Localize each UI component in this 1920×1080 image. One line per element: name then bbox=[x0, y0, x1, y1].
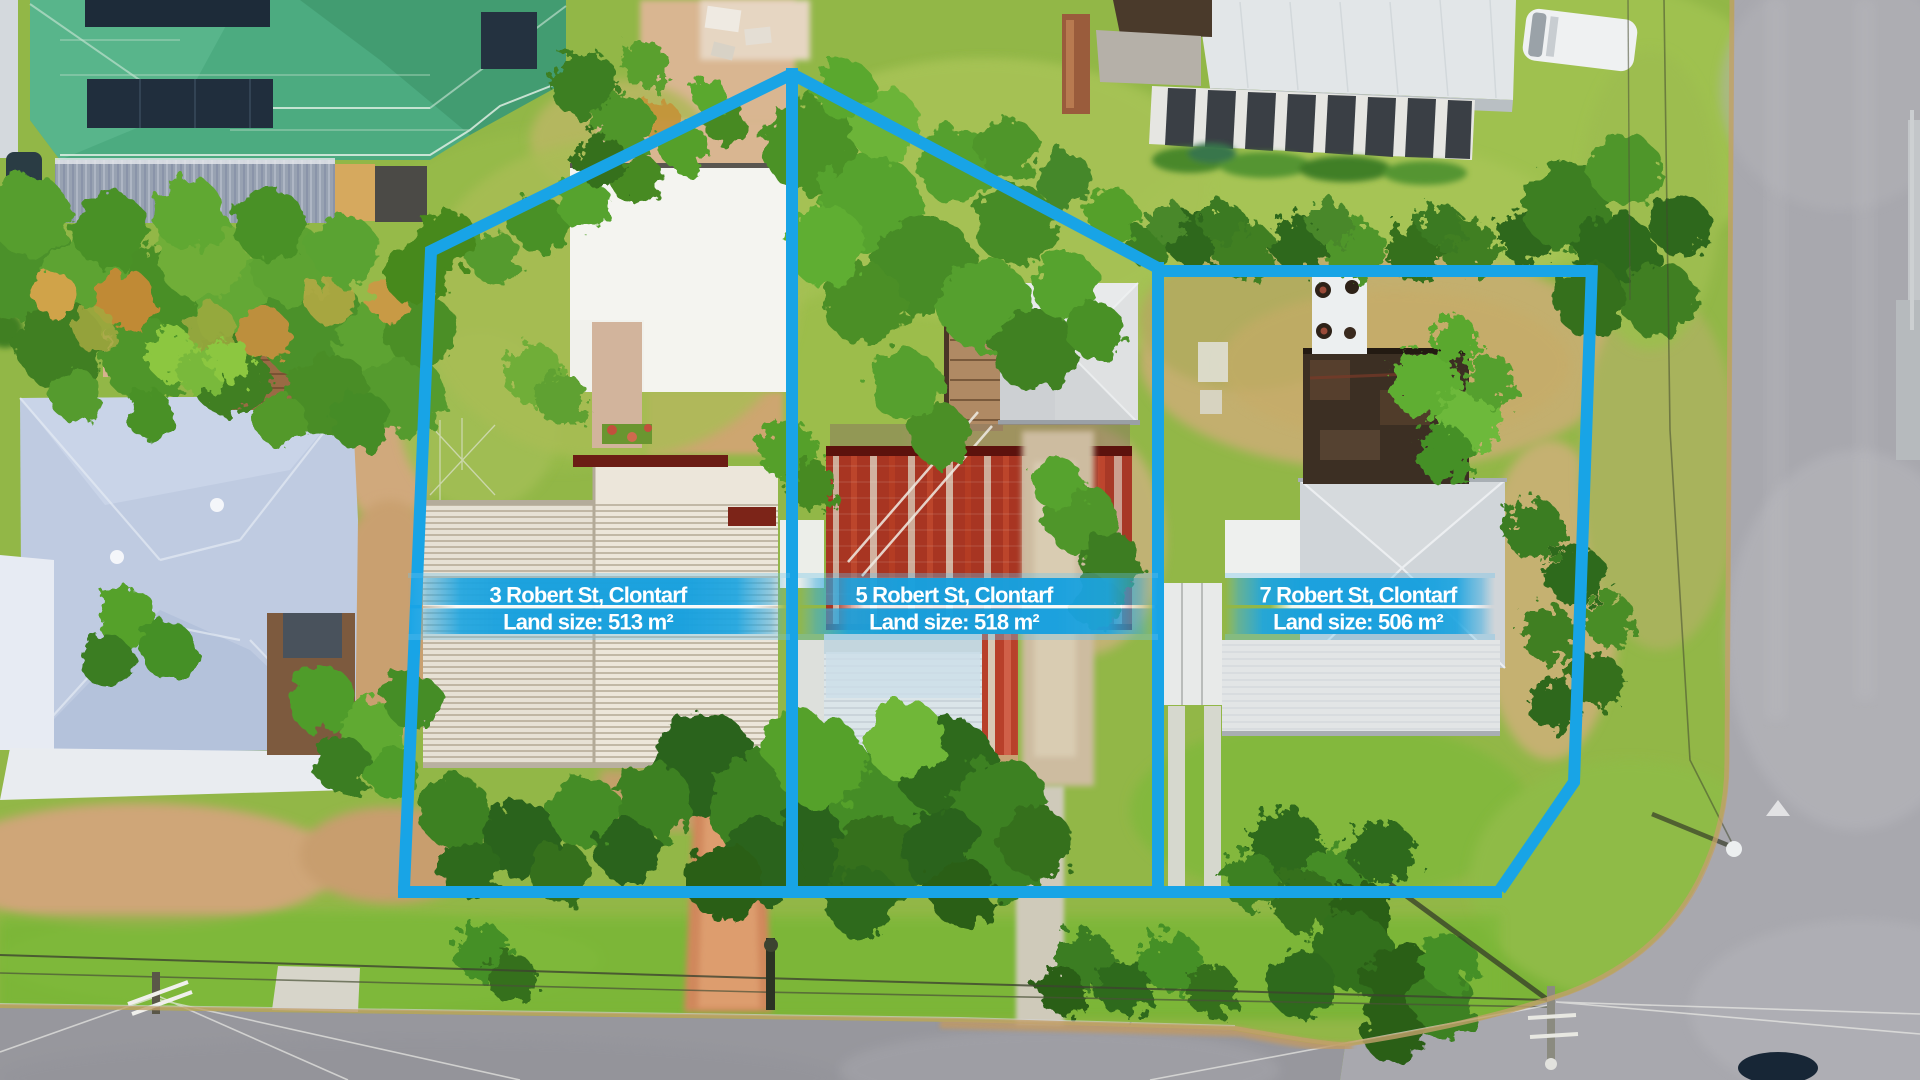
svg-text:Land size: 513 m²: Land size: 513 m² bbox=[503, 610, 673, 635]
svg-text:7 Robert St, Clontarf: 7 Robert St, Clontarf bbox=[1259, 583, 1458, 608]
svg-text:5 Robert St, Clontarf: 5 Robert St, Clontarf bbox=[855, 583, 1054, 608]
svg-text:3 Robert St, Clontarf: 3 Robert St, Clontarf bbox=[489, 583, 688, 608]
svg-text:Land size: 518 m²: Land size: 518 m² bbox=[869, 610, 1039, 635]
svg-text:Land size: 506 m²: Land size: 506 m² bbox=[1273, 610, 1443, 635]
